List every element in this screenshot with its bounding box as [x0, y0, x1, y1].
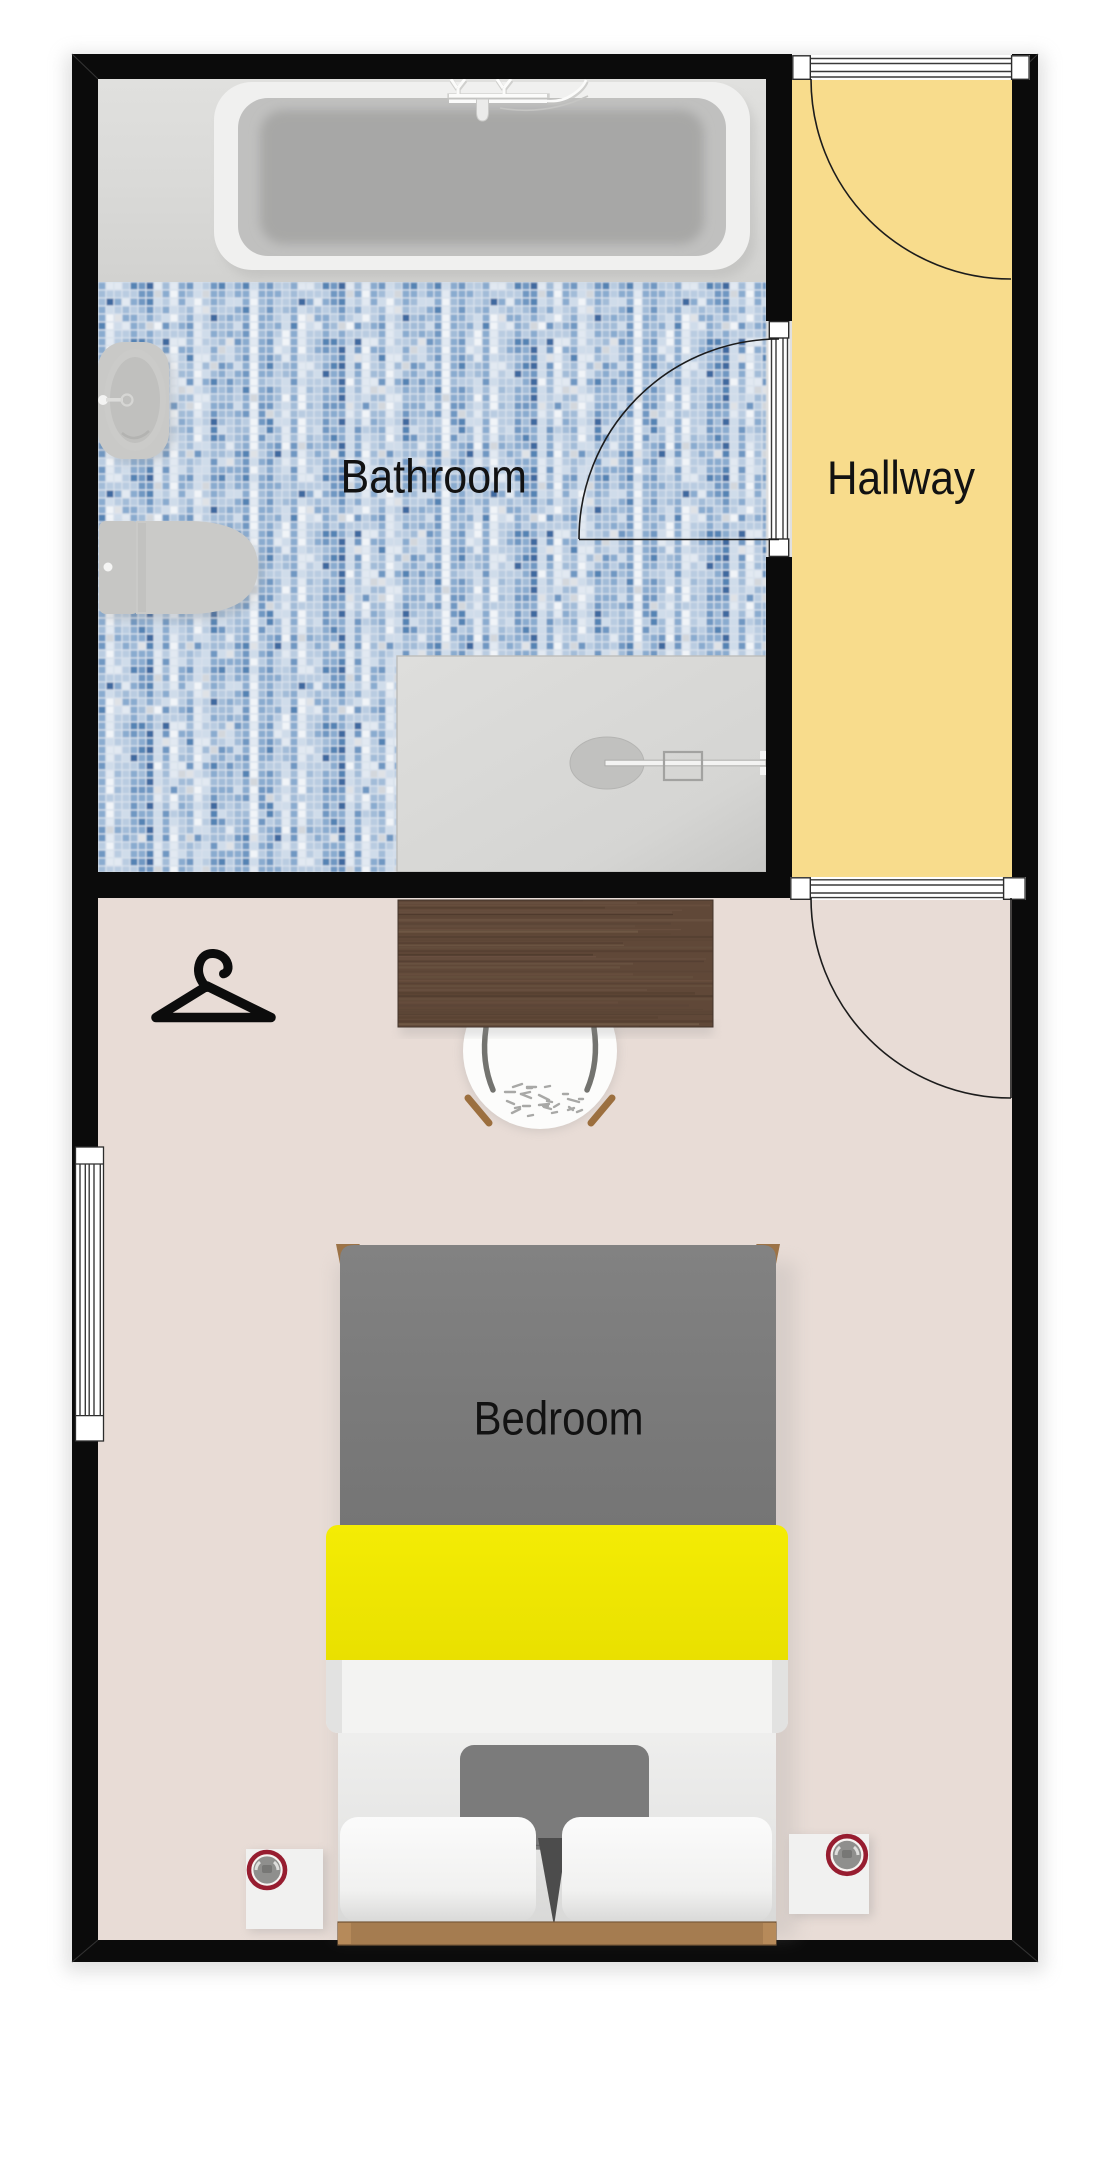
svg-text:Bathroom: Bathroom — [341, 449, 528, 502]
svg-text:Bedroom: Bedroom — [474, 1392, 644, 1445]
svg-text:Hallway: Hallway — [827, 451, 975, 504]
